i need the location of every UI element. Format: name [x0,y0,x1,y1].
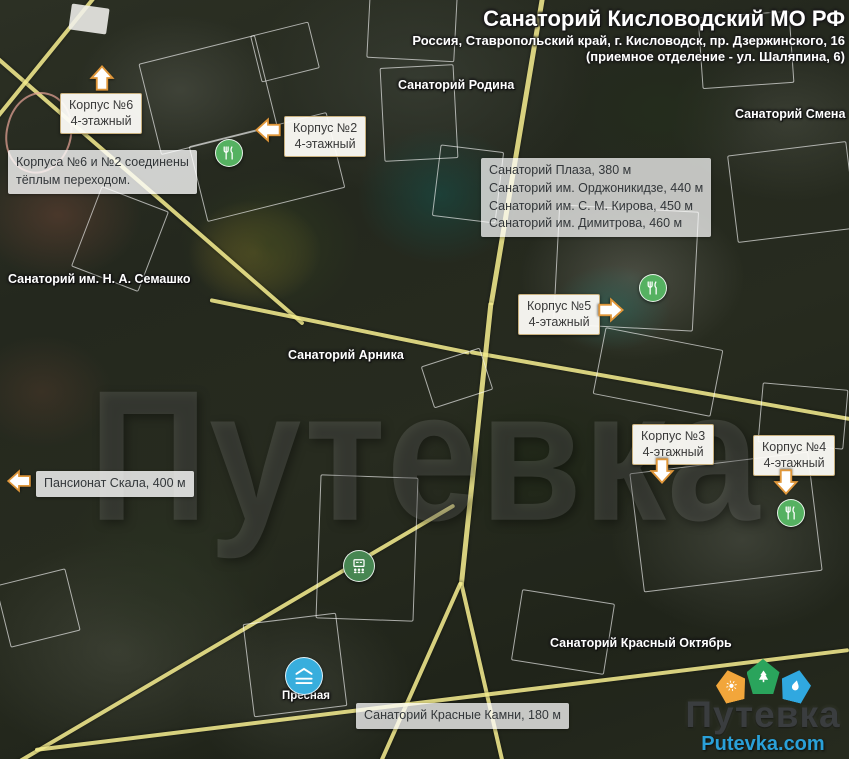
map-label-semashko: Санаторий им. Н. А. Семашко [8,272,191,286]
building-outline [511,589,615,675]
infobox-skala: Пансионат Скала, 400 м [36,471,194,497]
building-outline [727,141,849,243]
map-label-krasny-oktyabr: Санаторий Красный Октябрь [550,636,732,650]
callout-arrow-down-icon [648,457,676,485]
map-label-smena: Санаторий Смена [735,107,845,121]
address-line: Россия, Ставропольский край, г. Кисловод… [412,33,845,49]
building-outline [0,568,81,648]
restaurant-icon[interactable] [215,139,243,167]
page-title: Санаторий Кисловодский МО РФ [412,5,845,33]
logo-wordmark: Путевка [683,696,843,733]
road-line [459,582,506,759]
terrain-patch [430,380,650,550]
building-outline [316,474,419,621]
conference-icon[interactable] [343,550,375,582]
pool-icon[interactable] [285,657,323,695]
callout-korpus6: Корпус №6 4-этажный [60,93,142,134]
callout-arrow-left-icon [254,116,282,144]
infobox-nearby-sanatoriums: Санаторий Плаза, 380 м Санаторий им. Орд… [481,158,711,237]
callout-arrow-down-icon [772,468,800,496]
logo-site-link[interactable]: Putevka.com [683,733,843,755]
building-roof [68,3,109,34]
satellite-map[interactable]: Путевка Санаторий Кисловодский МО РФ Рос… [0,0,849,759]
tree-badge-icon [747,659,780,694]
infobox-connection: Корпуса №6 и №2 соединены тёплым переход… [8,150,197,194]
building-outline [593,327,724,417]
callout-arrow-left-icon [6,468,32,494]
building-outline [250,21,320,82]
infobox-krasnye-kamni: Санаторий Красные Камни, 180 м [356,703,569,729]
map-label-rodina: Санаторий Родина [398,78,514,92]
callout-arrow-right-icon [597,296,625,324]
road-line [459,302,494,586]
callout-korpus5: Корпус №5 4-этажный [518,294,600,335]
restaurant-icon[interactable] [777,499,805,527]
putevka-logo[interactable]: Путевка Putevka.com [683,650,843,755]
callout-korpus2: Корпус №2 4-этажный [284,116,366,157]
road-line [210,298,470,355]
restaurant-icon[interactable] [639,274,667,302]
logo-badges [683,650,843,696]
callout-arrow-up-icon [88,64,116,92]
map-label-arnika: Санаторий Арника [288,348,404,362]
address-line-2: (приемное отделение - ул. Шаляпина, 6) [412,49,845,65]
map-title-block: Санаторий Кисловодский МО РФ Россия, Ста… [412,5,845,65]
